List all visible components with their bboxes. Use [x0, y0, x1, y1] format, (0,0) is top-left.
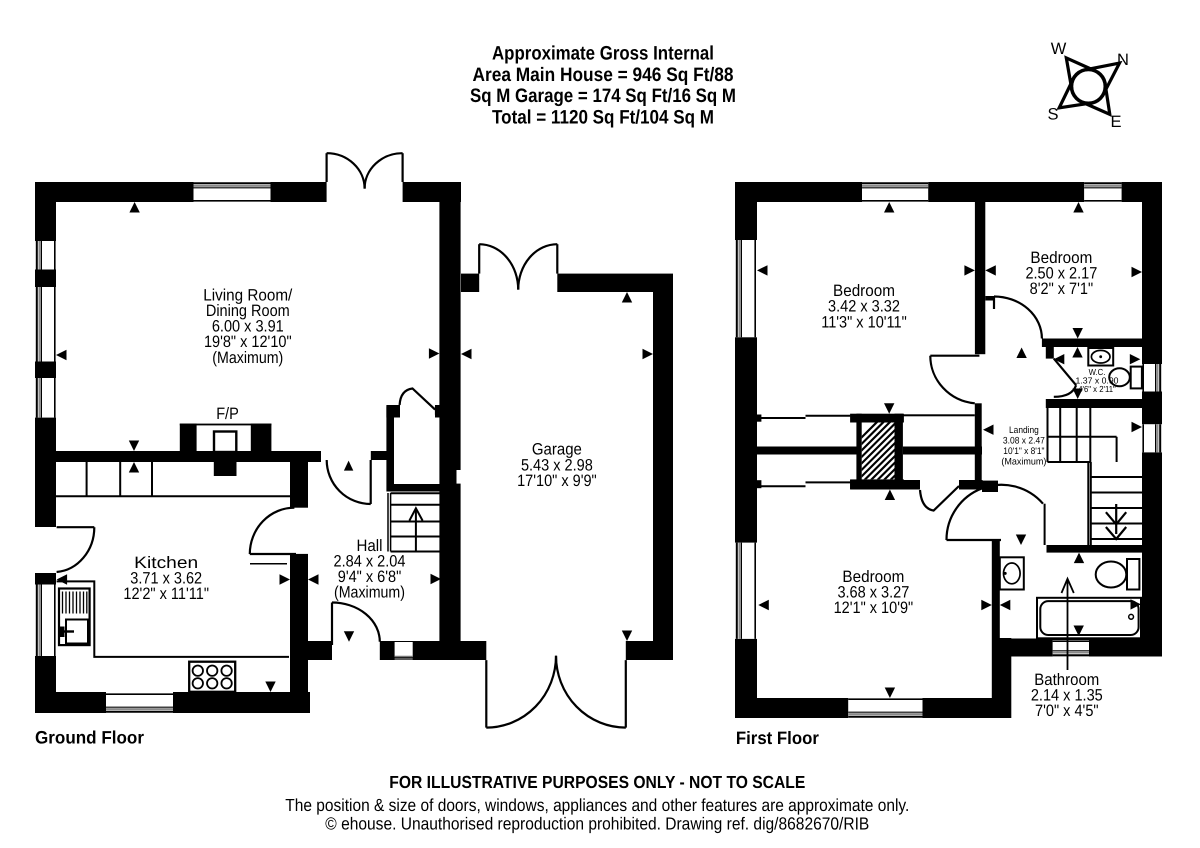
svg-text:4'6" x 2'11": 4'6" x 2'11": [1078, 384, 1116, 394]
svg-text:8'2" x 7'1": 8'2" x 7'1": [1030, 280, 1094, 298]
svg-text:(Maximum): (Maximum): [212, 349, 283, 367]
svg-text:Landing: Landing: [1009, 425, 1039, 436]
svg-text:First Floor: First Floor: [736, 728, 819, 748]
svg-text:(Maximum): (Maximum): [1001, 457, 1046, 468]
svg-text:S: S: [1047, 106, 1058, 124]
svg-text:10'1" x 8'1": 10'1" x 8'1": [1003, 446, 1044, 457]
svg-text:© ehouse. Unauthorised reprodu: © ehouse. Unauthorised reproduction proh…: [325, 814, 869, 834]
svg-text:(Maximum): (Maximum): [334, 583, 405, 601]
svg-text:Approximate Gross Internal: Approximate Gross Internal: [492, 43, 714, 65]
svg-text:FOR ILLUSTRATIVE PURPOSES ONLY: FOR ILLUSTRATIVE PURPOSES ONLY - NOT TO …: [389, 772, 805, 792]
svg-text:N: N: [1117, 51, 1129, 69]
svg-text:3.08 x 2.47: 3.08 x 2.47: [1003, 436, 1045, 447]
svg-text:17'10" x 9'9": 17'10" x 9'9": [517, 472, 597, 490]
svg-text:E: E: [1110, 113, 1121, 131]
svg-text:Total = 1120 Sq Ft/104 Sq M: Total = 1120 Sq Ft/104 Sq M: [492, 107, 714, 129]
svg-text:12'2" x 11'11": 12'2" x 11'11": [123, 585, 209, 603]
svg-text:12'1" x 10'9": 12'1" x 10'9": [834, 599, 914, 617]
svg-text:Area Main House = 946 Sq Ft/88: Area Main House = 946 Sq Ft/88: [473, 64, 734, 86]
svg-text:Sq M Garage = 174 Sq Ft/16 Sq: Sq M Garage = 174 Sq Ft/16 Sq M: [470, 85, 736, 107]
svg-text:7'0" x 4'5": 7'0" x 4'5": [1035, 702, 1099, 720]
svg-text:Ground Floor: Ground Floor: [35, 728, 144, 748]
svg-text:The position & size of doors,: The position & size of doors, windows, a…: [285, 795, 909, 815]
svg-text:11'3" x 10'11": 11'3" x 10'11": [821, 313, 907, 331]
svg-text:F/P: F/P: [216, 405, 239, 423]
svg-text:W: W: [1051, 40, 1067, 58]
